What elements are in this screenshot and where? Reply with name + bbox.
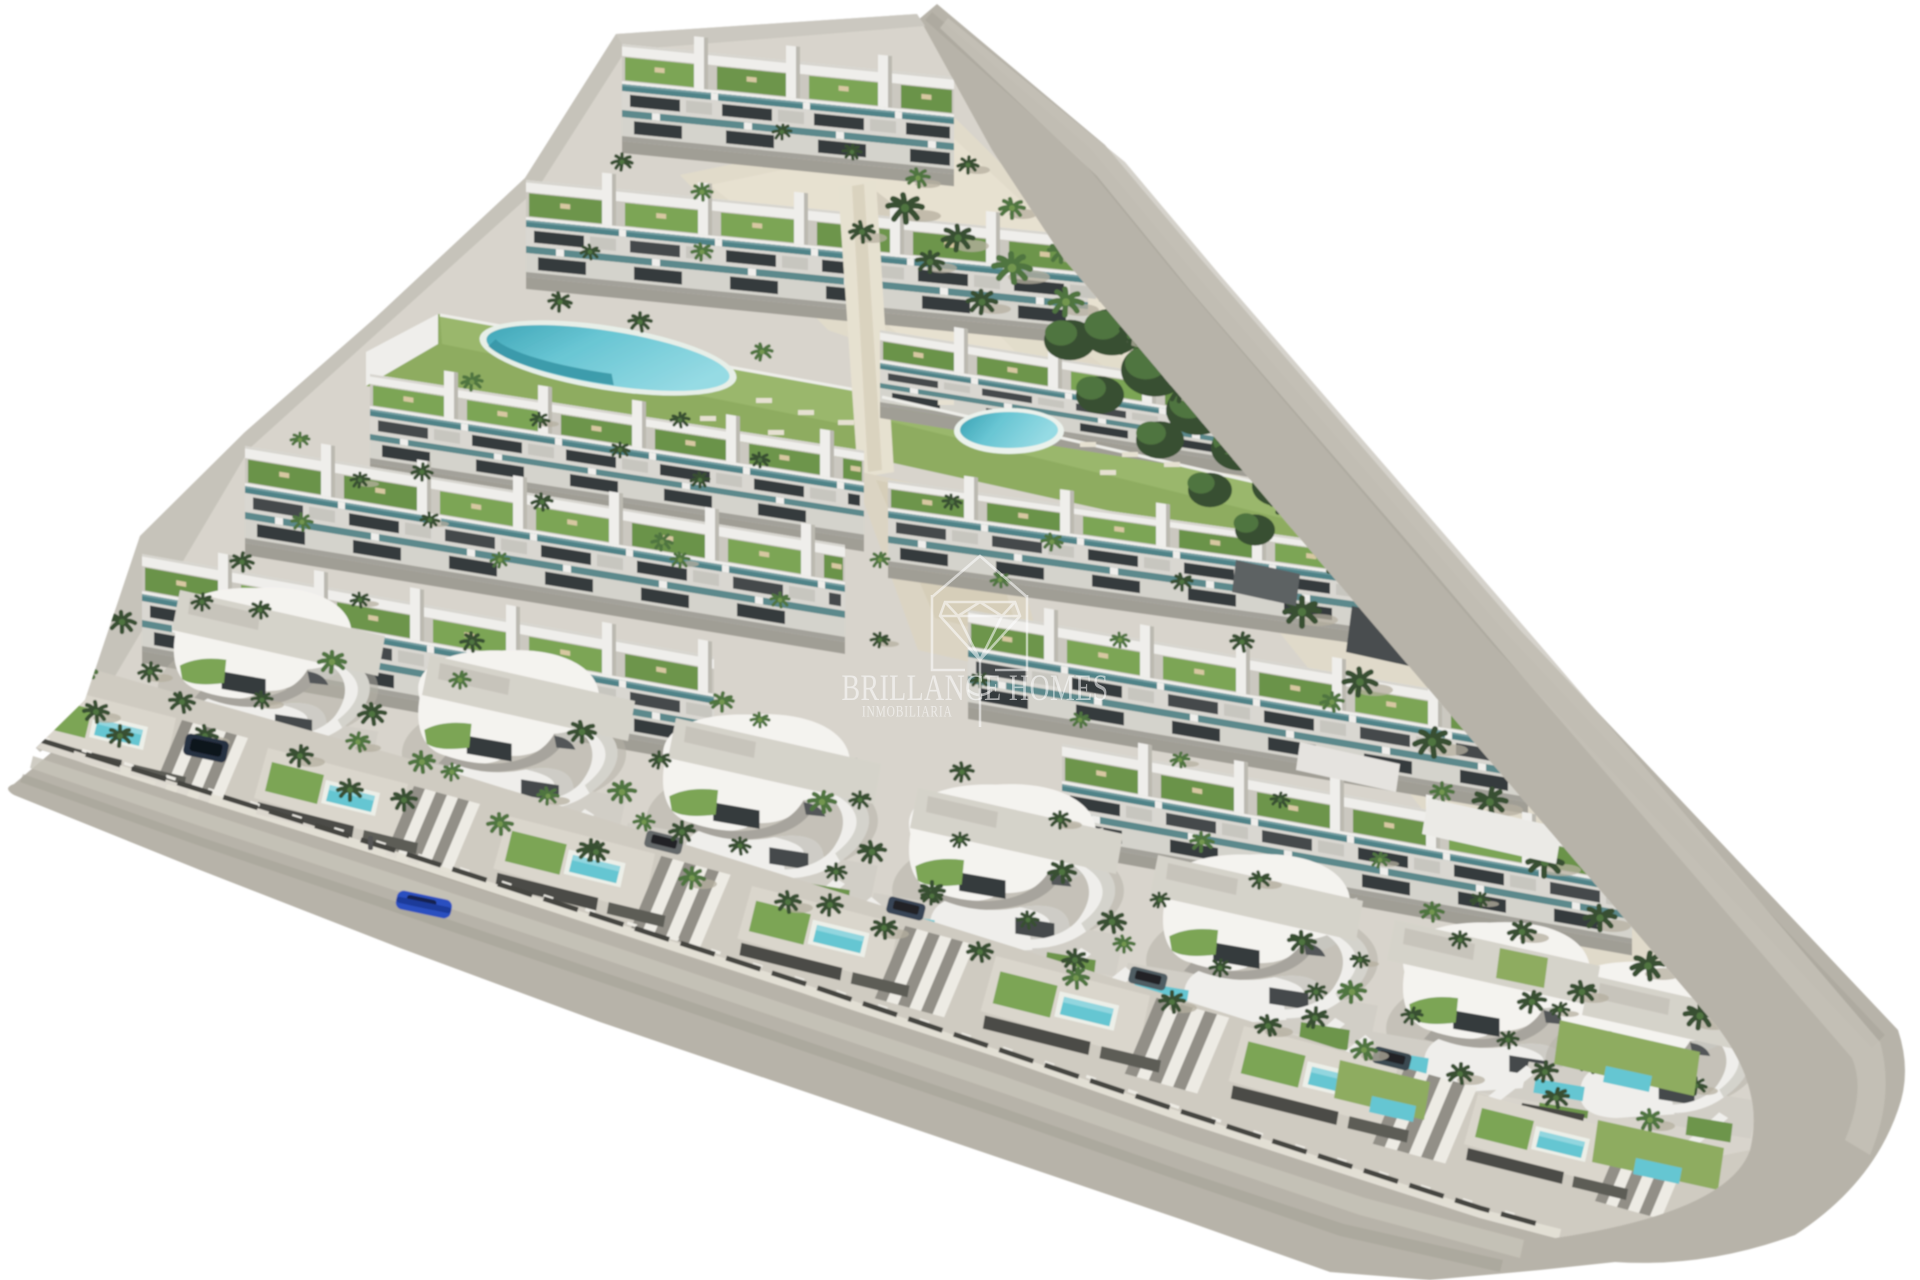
svg-text:INMOBILIARIA: INMOBILIARIA [862,703,953,720]
